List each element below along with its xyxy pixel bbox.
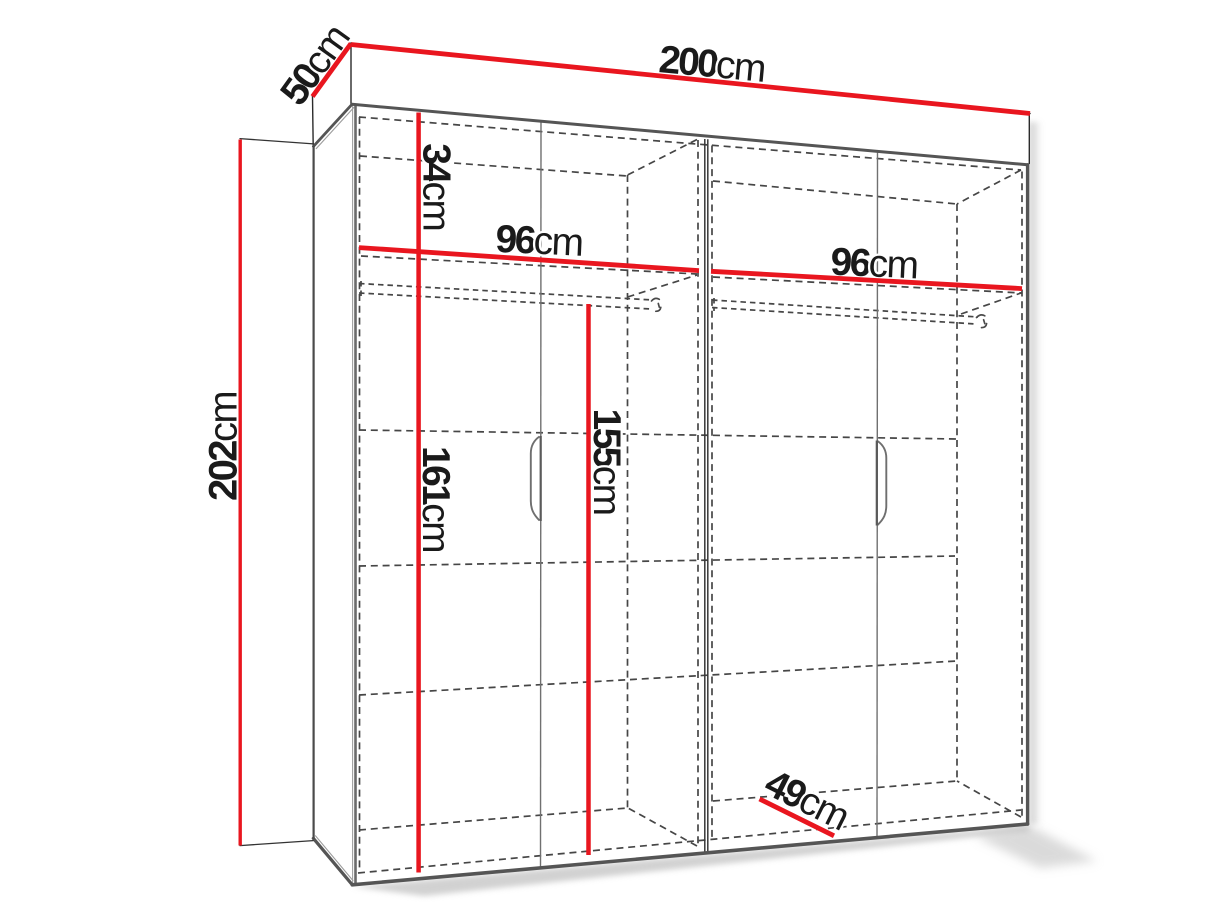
svg-text:155cm: 155cm — [585, 409, 628, 515]
svg-text:34cm: 34cm — [415, 143, 458, 230]
